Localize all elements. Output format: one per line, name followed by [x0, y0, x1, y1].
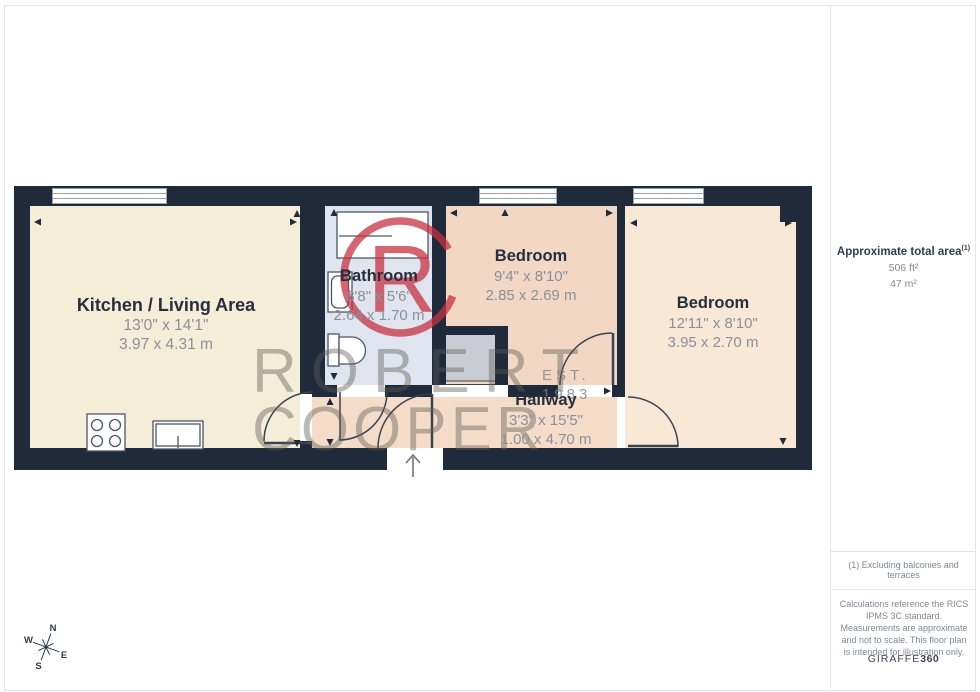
brand-suffix: 360	[920, 653, 939, 665]
room-name: Bathroom	[334, 266, 425, 287]
giraffe360-brand: GIRAFFE360	[831, 653, 976, 665]
hallway-label: Hallway 3'3" x 15'5" 1.00 x 4.70 m	[501, 390, 592, 449]
area-title-text: Approximate total area	[837, 246, 962, 258]
disclaimer-text: Calculations reference the RICS IPMS 3C …	[838, 598, 970, 658]
room-dims-metric: 3.97 x 4.31 m	[77, 335, 255, 354]
total-area-block: Approximate total area(1) 506 ft² 47 m²	[831, 245, 976, 290]
area-footnote-ref: (1)	[962, 245, 971, 252]
room-dims-imperial: 12'11" x 8'10"	[668, 314, 759, 333]
bedroom-middle-label: Bedroom 9'4" x 8'10" 2.85 x 2.69 m	[486, 246, 577, 305]
sidebar-divider	[830, 5, 831, 689]
room-dims-imperial: 3'3" x 15'5"	[501, 411, 592, 430]
sidebar-hdivider-1	[831, 551, 976, 552]
kitchen-label: Kitchen / Living Area 13'0" x 14'1" 3.97…	[77, 295, 255, 354]
room-dims-metric: 2.64 x 1.70 m	[334, 306, 425, 325]
wall-right	[796, 206, 812, 448]
room-dims-imperial: 8'8" x 5'6"	[334, 287, 425, 306]
area-title: Approximate total area(1)	[831, 245, 976, 258]
area-sqm: 47 m²	[831, 278, 976, 290]
room-dims-imperial: 9'4" x 8'10"	[486, 267, 577, 286]
window-bedroom-middle	[479, 188, 557, 204]
room-name: Hallway	[501, 390, 592, 411]
wall-left	[14, 206, 30, 448]
room-dims-metric: 2.85 x 2.69 m	[486, 286, 577, 305]
brand-name: GIRAFFE	[868, 653, 921, 665]
area-sqft: 506 ft²	[831, 262, 976, 274]
window-bedroom-right	[633, 188, 704, 204]
room-dims-metric: 3.95 x 2.70 m	[668, 333, 759, 352]
room-name: Kitchen / Living Area	[77, 295, 255, 316]
bedroom-right-corner-notch	[780, 206, 796, 222]
area-footnote: (1) Excluding balconies and terraces	[831, 560, 976, 580]
room-name: Bedroom	[486, 246, 577, 267]
watermark-est-line: EST.	[542, 366, 591, 385]
window-kitchen	[52, 188, 167, 204]
sidebar-hdivider-2	[831, 589, 976, 590]
room-dims-metric: 1.00 x 4.70 m	[501, 430, 592, 449]
bathroom-label: Bathroom 8'8" x 5'6" 2.64 x 1.70 m	[334, 266, 425, 325]
floorplan-page: N E S W ROBERT COOPER EST. 1983 R Kitche…	[0, 0, 980, 692]
room-dims-imperial: 13'0" x 14'1"	[77, 316, 255, 335]
bedroom-right-label: Bedroom 12'11" x 8'10" 3.95 x 2.70 m	[668, 293, 759, 352]
wall-between-bedrooms	[617, 206, 625, 397]
room-name: Bedroom	[668, 293, 759, 314]
